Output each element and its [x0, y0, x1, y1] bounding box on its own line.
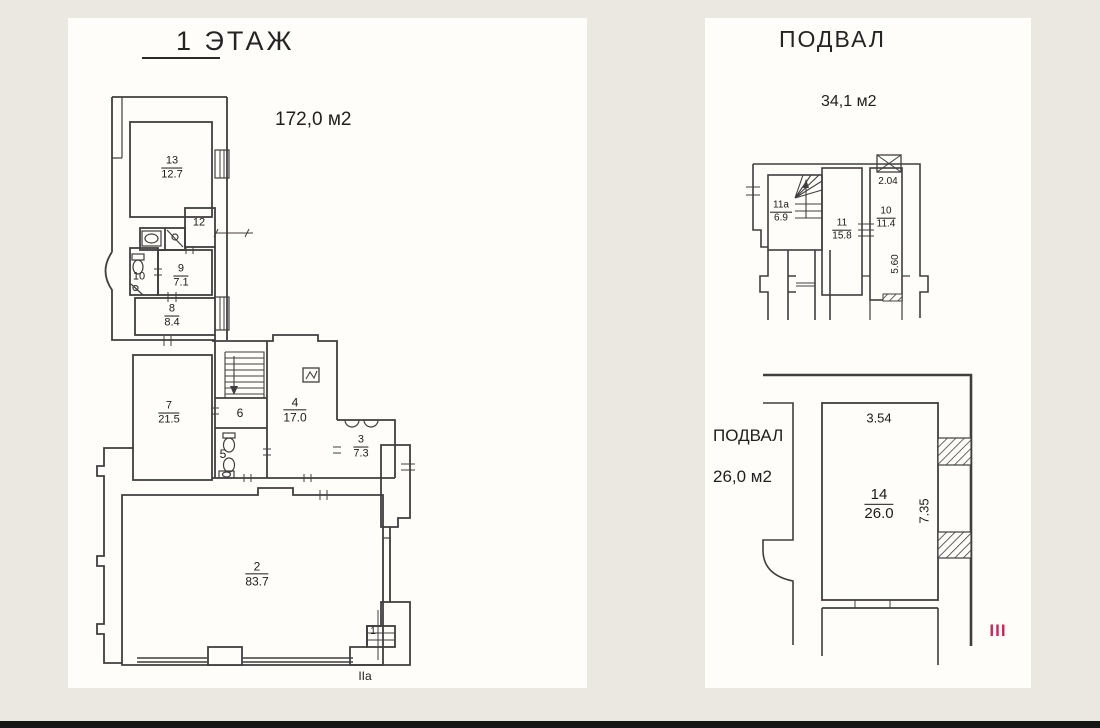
door-opening-ticks	[154, 246, 415, 500]
room-label-b10: 10 11.4	[877, 206, 896, 231]
room-label-10: 10	[133, 271, 145, 284]
basement-panel: ПОДВАЛ 34,1 м2	[705, 18, 1031, 688]
bottom-bar	[0, 721, 1100, 728]
basement-lower-label: ПОДВАЛ	[713, 427, 783, 444]
room-label-5: 5	[220, 447, 227, 461]
basement-plan-drawing	[705, 18, 1031, 688]
bathroom-fixture-icons	[131, 230, 378, 478]
entrance-label: IIa	[358, 669, 371, 683]
basement-lower-area: 26,0 м2	[713, 468, 772, 485]
dim-lower-width: 3.54	[866, 412, 891, 425]
room-label-4: 4 17.0	[283, 395, 306, 424]
room-label-2: 2 83.7	[245, 559, 268, 588]
room-label-6: 6	[237, 406, 244, 420]
room-label-13: 13 12.7	[161, 155, 182, 182]
dim-upper-height: 5.60	[891, 254, 901, 273]
room-label-7: 7 21.5	[158, 400, 179, 427]
page-background: 1 ЭТАЖ 172,0 м2	[0, 0, 1100, 728]
basement-stairs-icon	[795, 175, 822, 218]
floor1-plan-drawing	[68, 18, 587, 688]
room-label-14: 14 26.0	[864, 486, 893, 522]
wall-hatch-sill	[883, 294, 902, 301]
room-label-3: 3 7.3	[353, 434, 368, 461]
room-label-12: 12	[193, 217, 205, 230]
floor1-panel: 1 ЭТАЖ 172,0 м2	[68, 18, 587, 688]
room-label-8: 8 8.4	[164, 303, 179, 330]
wall-hatch-block-bottom	[938, 532, 971, 558]
room-label-9: 9 7.1	[173, 263, 188, 290]
room-label-1: 1	[370, 626, 376, 638]
wall-hatch-block-top	[938, 438, 971, 465]
dim-upper-width: 2.04	[878, 177, 897, 187]
section-mark-iii: III	[989, 621, 1006, 641]
window-vent-icon	[303, 368, 319, 382]
room-label-11a: 11а 6.9	[770, 200, 792, 225]
dim-lower-height: 7.35	[918, 498, 931, 523]
room-label-b11: 11 15.8	[832, 218, 851, 243]
stairs-icon	[225, 352, 264, 398]
